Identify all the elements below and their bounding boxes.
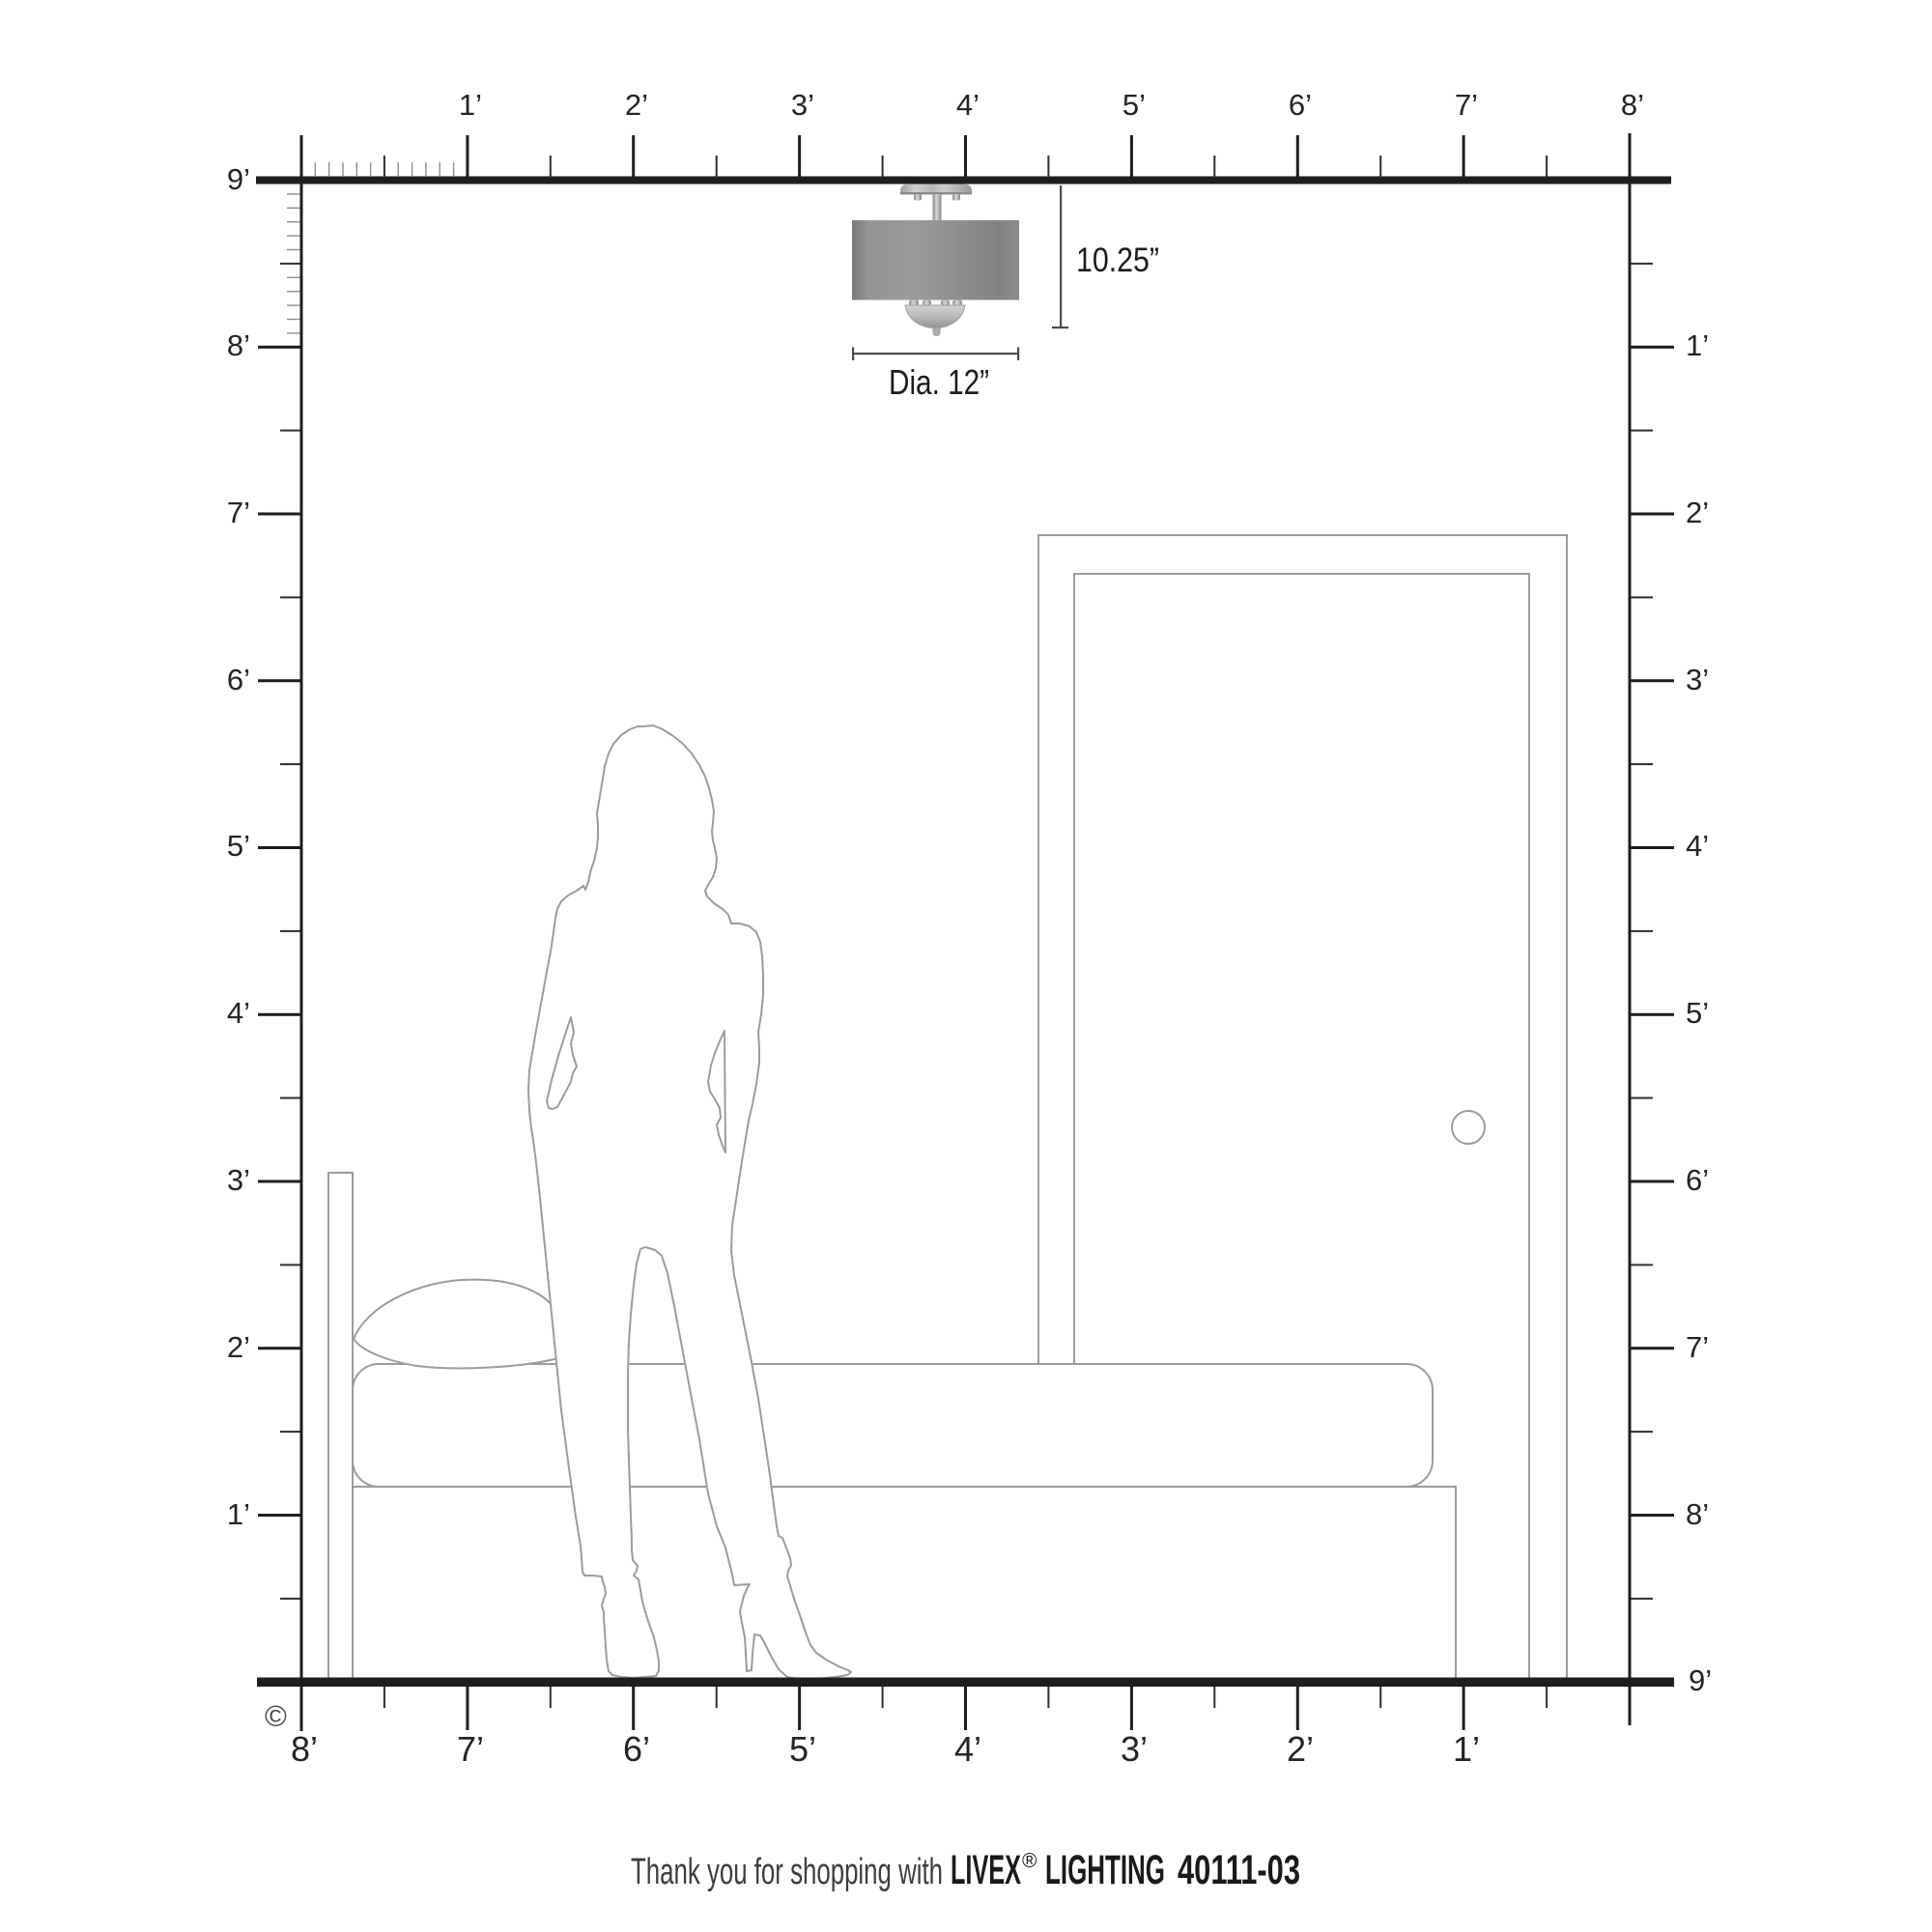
svg-text:6’: 6’ (1686, 1163, 1709, 1197)
svg-text:7’: 7’ (1686, 1330, 1709, 1364)
svg-text:8’: 8’ (291, 1729, 318, 1769)
svg-text:5’: 5’ (227, 829, 250, 863)
svg-text:6’: 6’ (1289, 88, 1312, 122)
svg-text:2’: 2’ (1686, 496, 1709, 529)
svg-text:4’: 4’ (1686, 829, 1709, 863)
svg-text:3’: 3’ (791, 88, 814, 122)
svg-text:9’: 9’ (227, 162, 250, 196)
svg-text:5’: 5’ (1686, 996, 1709, 1030)
svg-text:4’: 4’ (954, 1729, 981, 1769)
svg-text:7’: 7’ (457, 1729, 484, 1769)
svg-text:6’: 6’ (623, 1729, 650, 1769)
svg-text:2’: 2’ (625, 88, 648, 122)
svg-text:5’: 5’ (1122, 88, 1146, 122)
svg-text:10.25”: 10.25” (1076, 241, 1159, 279)
svg-text:1’: 1’ (1686, 328, 1709, 362)
svg-text:8’: 8’ (1686, 1497, 1709, 1531)
svg-text:2’: 2’ (1287, 1729, 1314, 1769)
svg-text:1’: 1’ (227, 1497, 250, 1531)
svg-text:6’: 6’ (227, 663, 250, 696)
svg-text:9’: 9’ (1689, 1663, 1712, 1697)
svg-text:5’: 5’ (789, 1729, 816, 1769)
svg-text:3’: 3’ (1686, 663, 1709, 696)
svg-text:Thank you for shopping withLIV: Thank you for shopping withLIVEX®LIGHTIN… (631, 1847, 1300, 1893)
svg-text:Dia. 12”: Dia. 12” (889, 362, 989, 402)
svg-text:1’: 1’ (459, 88, 482, 122)
svg-text:4’: 4’ (956, 88, 980, 122)
svg-text:7’: 7’ (227, 496, 250, 529)
svg-text:1’: 1’ (1453, 1729, 1480, 1769)
svg-text:3’: 3’ (1121, 1729, 1148, 1769)
svg-text:8’: 8’ (1621, 88, 1644, 122)
svg-text:7’: 7’ (1455, 88, 1478, 122)
svg-text:3’: 3’ (227, 1163, 250, 1197)
svg-text:8’: 8’ (227, 328, 250, 362)
svg-text:2’: 2’ (227, 1330, 250, 1364)
svg-text:4’: 4’ (227, 996, 250, 1030)
svg-text:©: © (265, 1699, 287, 1733)
